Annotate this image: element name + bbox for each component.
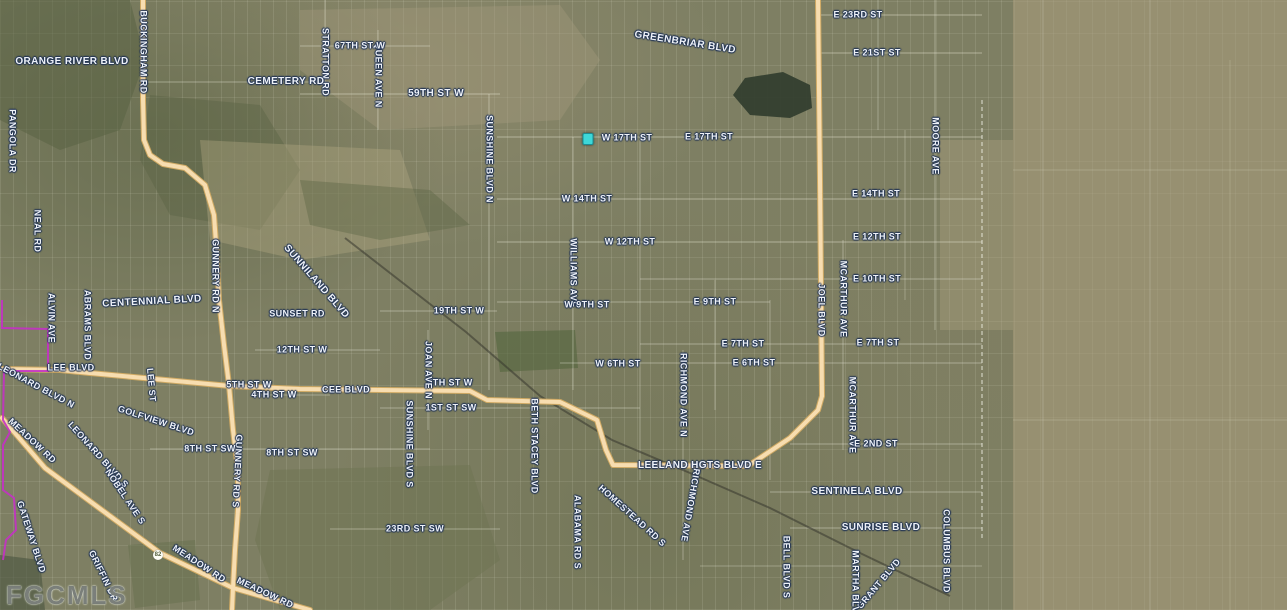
street-label: RICHMOND AVE N xyxy=(679,353,688,437)
street-label: ALABAMA RD S xyxy=(573,495,582,569)
street-label: W 12TH ST xyxy=(605,238,656,247)
satellite-map-canvas[interactable]: 82 FGCMLS ORANGE RIVER BLVDBUCKINGHAM RD… xyxy=(0,0,1287,610)
street-label: SENTINELA BLVD xyxy=(811,487,902,497)
street-label: 4TH ST W xyxy=(251,391,296,400)
street-label: CEE BLVD xyxy=(322,386,370,395)
street-label: E 21ST ST xyxy=(853,49,901,58)
street-label: 8TH ST SW xyxy=(266,449,318,458)
street-label: QUEEN AVE N xyxy=(374,42,383,107)
street-label: JOEL BLVD xyxy=(817,283,826,336)
street-label: ALVIN AVE xyxy=(47,293,56,343)
street-label: 67TH ST W xyxy=(335,42,386,51)
street-label: BUCKINGHAM RD xyxy=(139,10,148,93)
street-label: LEELAND HGTS BLVD E xyxy=(638,461,762,471)
street-label: LEE ST xyxy=(145,368,157,403)
street-label: 1ST ST SW xyxy=(425,404,476,413)
street-label: E 7TH ST xyxy=(857,339,900,348)
street-label: 5TH ST W xyxy=(427,379,472,388)
street-label: GUNNERY RD N xyxy=(211,239,220,313)
fgcmls-watermark: FGCMLS xyxy=(6,580,128,610)
street-label: 19TH ST W xyxy=(434,307,485,316)
street-label: MOORE AVE xyxy=(931,117,940,175)
street-label: LEE BLVD xyxy=(47,364,94,373)
highway-82-shield-icon: 82 xyxy=(153,550,163,560)
street-label: ABRAMS BLVD xyxy=(83,290,92,360)
street-label: SUNSHINE BLVD N xyxy=(485,115,494,203)
street-label: E 2ND ST xyxy=(854,440,898,449)
street-label: JOAN AVE N xyxy=(424,341,433,399)
street-label: MCARTHUR AVE xyxy=(839,261,848,338)
street-label: CEMETERY RD xyxy=(248,77,325,87)
street-label: COLUMBUS BLVD xyxy=(942,509,951,593)
terrain-patch xyxy=(0,0,145,150)
street-label: PANGOLA DR xyxy=(8,109,17,173)
street-label: E 14TH ST xyxy=(852,190,900,199)
street-label: W 14TH ST xyxy=(562,195,613,204)
street-label: 23RD ST SW xyxy=(386,525,444,534)
street-label: 12TH ST W xyxy=(277,346,328,355)
street-label: E 10TH ST xyxy=(853,275,901,284)
terrain-patch xyxy=(255,465,500,610)
terrain-patch xyxy=(733,72,812,118)
street-label: E 6TH ST xyxy=(733,359,776,368)
street-label: E 9TH ST xyxy=(694,298,737,307)
street-label: 5TH ST W xyxy=(226,381,271,390)
street-label: SUNRISE BLVD xyxy=(842,523,921,533)
listing-location-marker[interactable] xyxy=(583,133,594,145)
street-label: E 7TH ST xyxy=(722,340,765,349)
street-label: W 9TH ST xyxy=(564,301,609,310)
street-label: SUNSET RD xyxy=(269,310,325,319)
street-label: ORANGE RIVER BLVD xyxy=(15,57,128,67)
terrain-patch xyxy=(300,5,600,130)
street-label: W 6TH ST xyxy=(595,360,640,369)
street-label: BELL BLVD S xyxy=(782,536,791,599)
street-label: BETH STACEY BLVD xyxy=(530,398,539,493)
street-label: E 23RD ST xyxy=(833,11,882,20)
street-label: NEAL RD xyxy=(33,210,42,253)
street-label: E 17TH ST xyxy=(685,133,733,142)
street-label: E 12TH ST xyxy=(853,233,901,242)
street-label: SUNSHINE BLVD S xyxy=(405,400,414,487)
terrain-patch xyxy=(495,330,578,372)
street-label: 8TH ST SW xyxy=(184,445,236,454)
street-label: 59TH ST W xyxy=(408,89,464,99)
street-label: MARTHA BLVD xyxy=(851,550,860,610)
street-label: W 17TH ST xyxy=(602,134,653,143)
street-label: WILLIAMS AVE xyxy=(569,238,578,307)
terrain-patch xyxy=(940,140,1013,330)
